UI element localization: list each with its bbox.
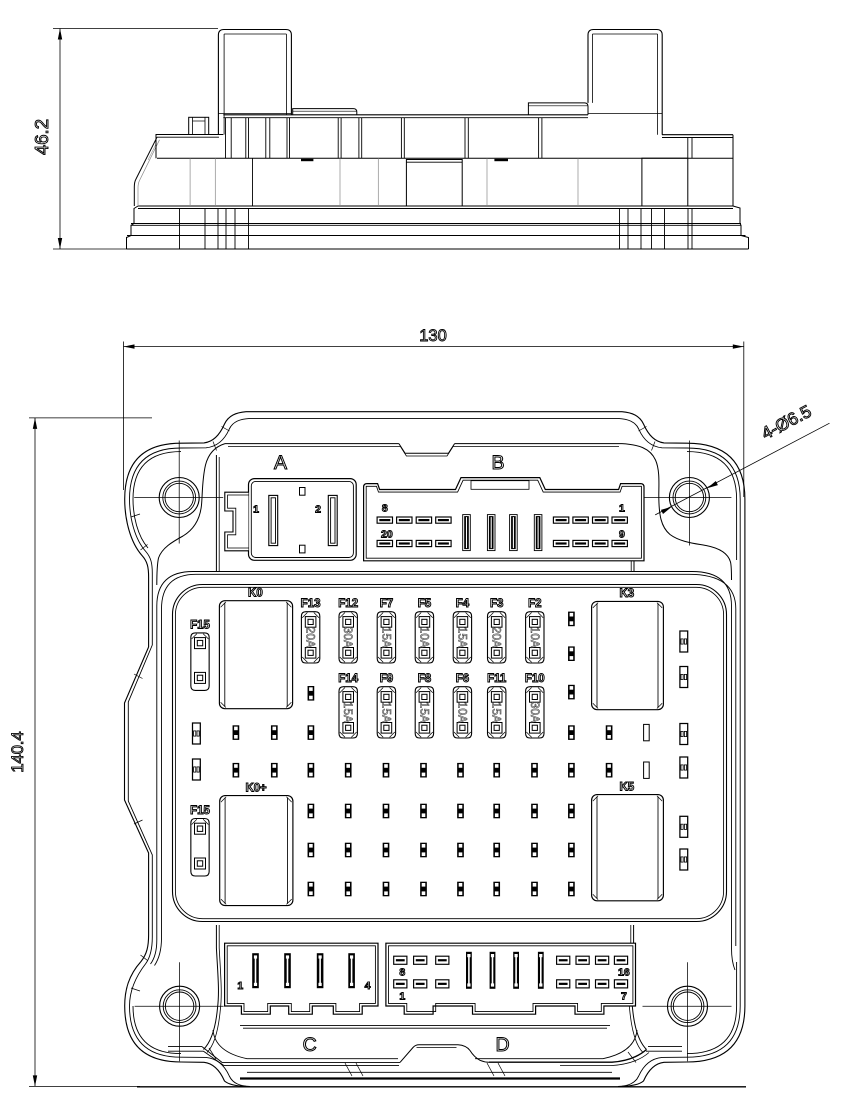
svg-text:10A: 10A: [455, 702, 469, 723]
svg-text:F15: F15: [190, 620, 210, 632]
svg-text:B: B: [491, 452, 504, 474]
svg-text:20A: 20A: [304, 627, 318, 648]
svg-text:F14: F14: [338, 673, 358, 685]
svg-text:A: A: [274, 452, 287, 474]
svg-text:F9: F9: [380, 673, 393, 685]
svg-text:F6: F6: [456, 673, 469, 685]
svg-text:D: D: [496, 1034, 510, 1056]
svg-text:46.2: 46.2: [31, 119, 52, 155]
svg-text:20A: 20A: [490, 627, 504, 648]
svg-text:1: 1: [237, 980, 243, 992]
svg-text:20: 20: [381, 528, 393, 540]
svg-text:K5: K5: [619, 782, 634, 794]
svg-text:15A: 15A: [341, 702, 355, 723]
svg-text:15A: 15A: [417, 702, 431, 723]
svg-text:F2: F2: [528, 598, 541, 610]
svg-text:F5: F5: [418, 598, 432, 610]
svg-text:F8: F8: [418, 673, 432, 685]
svg-text:F12: F12: [338, 598, 358, 610]
svg-text:10A: 10A: [417, 627, 431, 648]
svg-text:140.4: 140.4: [9, 731, 27, 772]
svg-text:1: 1: [253, 504, 259, 516]
svg-text:130: 130: [419, 327, 447, 345]
svg-text:10A: 10A: [528, 627, 542, 648]
svg-text:1: 1: [619, 503, 625, 515]
svg-text:2: 2: [315, 504, 321, 516]
svg-text:8: 8: [399, 967, 405, 979]
svg-text:F10: F10: [525, 673, 545, 685]
svg-text:F11: F11: [487, 673, 507, 685]
svg-text:4: 4: [365, 980, 371, 992]
svg-text:K3: K3: [619, 588, 634, 600]
svg-text:30A: 30A: [341, 627, 355, 648]
svg-text:15A: 15A: [379, 702, 393, 723]
svg-text:1: 1: [399, 991, 405, 1003]
svg-text:15A: 15A: [490, 702, 504, 723]
svg-text:C: C: [303, 1034, 317, 1056]
svg-text:9: 9: [619, 528, 625, 540]
svg-text:F3: F3: [490, 598, 503, 610]
svg-text:15A: 15A: [379, 627, 393, 648]
svg-text:F4: F4: [456, 598, 470, 610]
svg-text:F15: F15: [190, 805, 210, 817]
svg-text:8: 8: [382, 503, 388, 515]
svg-text:F7: F7: [380, 598, 393, 610]
svg-text:30A: 30A: [528, 702, 542, 723]
svg-text:16: 16: [618, 967, 630, 979]
svg-text:K0: K0: [248, 588, 263, 600]
svg-text:K0÷: K0÷: [245, 783, 267, 795]
svg-text:F13: F13: [301, 598, 321, 610]
svg-text:15A: 15A: [455, 627, 469, 648]
svg-text:7: 7: [621, 991, 627, 1003]
